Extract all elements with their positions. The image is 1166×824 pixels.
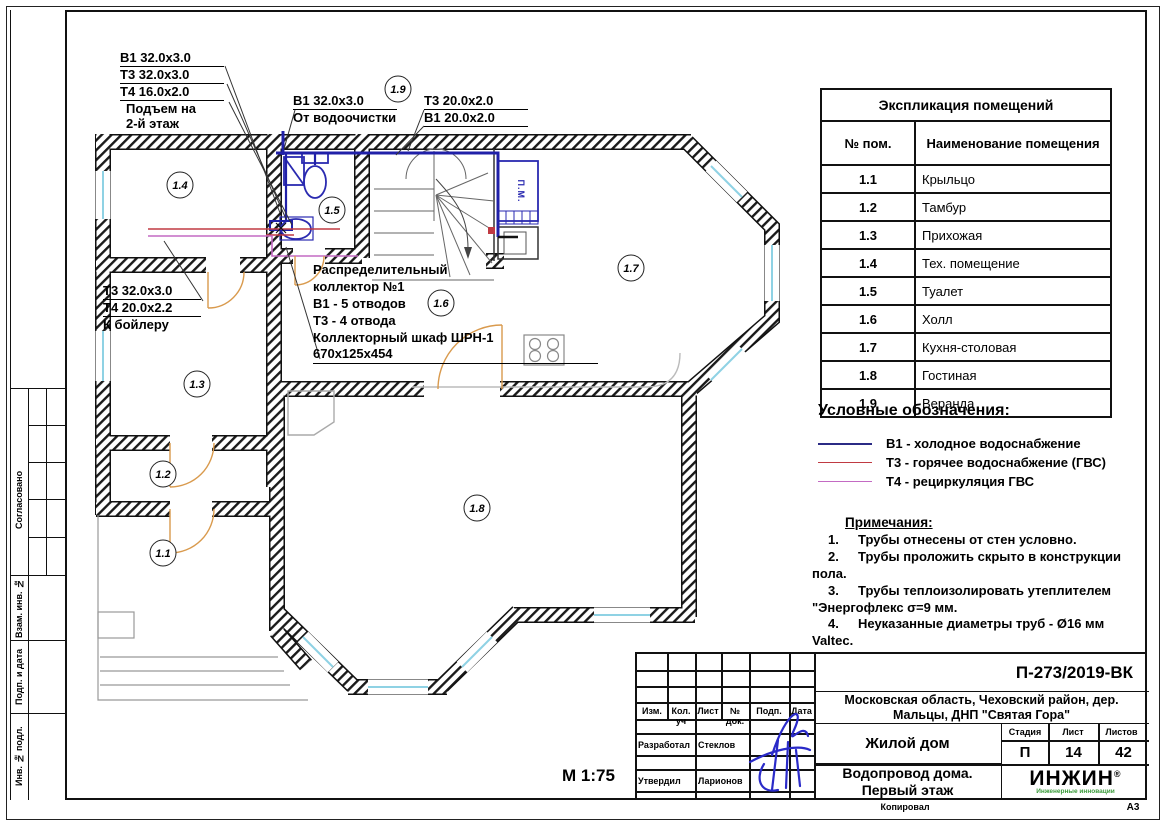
tb-sheet-label: Лист	[1048, 727, 1098, 737]
t3-line-swatch	[818, 462, 872, 463]
scale-label: М 1:75	[562, 766, 615, 786]
svg-text:1.5: 1.5	[324, 205, 340, 217]
tb-sheet-value: 14	[1049, 741, 1098, 763]
stamp-col-subline	[28, 388, 29, 800]
company-logo: ИНЖИН® Инженерные инновации	[1002, 765, 1149, 798]
room-table-col-num: № пом.	[821, 121, 915, 165]
note-item: 2.Трубы проложить скрыто в конструкции п…	[812, 549, 1144, 583]
t4-line-swatch	[818, 481, 872, 482]
svg-text:1.2: 1.2	[155, 469, 170, 481]
signature	[742, 700, 820, 798]
stamp-sec-line	[10, 713, 65, 714]
svg-text:1.4: 1.4	[172, 180, 187, 192]
annotation-boiler: Т3 32.0х3.0 Т4 20.0х2.2 К бойлеру	[103, 283, 201, 333]
tb-address: Московская область, Чеховский район, дер…	[814, 692, 1149, 724]
tb-approved-label: Утвердил	[638, 776, 695, 786]
note-item: 1.Трубы отнесены от стен условно.	[812, 532, 1144, 549]
legend-item-t4: Т4 - рециркуляция ГВС	[818, 472, 1106, 491]
tb-developed-label: Разработал	[638, 740, 695, 750]
table-row: 1.7Кухня-столовая	[821, 333, 1111, 361]
tb-stage-value: П	[1002, 741, 1048, 763]
dishwasher-label: П.М.	[516, 180, 526, 203]
tb-col-izm: Изм.	[637, 706, 667, 716]
floor-plan: П.М.	[90, 45, 815, 710]
notes: 1.Трубы отнесены от стен условно. 2.Труб…	[812, 532, 1144, 650]
stamp-sec-line	[10, 575, 65, 576]
stamp-sec-line	[28, 462, 65, 463]
tb-line	[637, 670, 814, 672]
table-row: 1.6Холл	[821, 305, 1111, 333]
table-row: 1.2Тамбур	[821, 193, 1111, 221]
annotation-inlet: В1 32.0х3.0 От водоочистки	[293, 93, 397, 126]
tb-approved-name: Ларионов	[698, 776, 748, 786]
legend-item-t3: Т3 - горячее водоснабжение (ГВС)	[818, 453, 1106, 472]
table-row: 1.1Крыльцо	[821, 165, 1111, 193]
stairs	[372, 149, 494, 280]
stamp-label-vzam: Взам. инв. №	[10, 577, 28, 639]
legend-title: Условные обозначения:	[818, 402, 1010, 420]
annotation-riser: В1 32.0х3.0 Т3 32.0х3.0 Т4 16.0х2.0 Подъ…	[120, 50, 224, 132]
svg-text:1.3: 1.3	[189, 379, 204, 391]
stamp-sec-line	[28, 537, 65, 538]
stamp-sec-line	[10, 640, 65, 641]
tb-line	[695, 654, 697, 798]
notes-title: Примечания:	[845, 514, 933, 532]
room-schedule-table: Экспликация помещений № пом. Наименовани…	[820, 88, 1112, 418]
stamp-label-soglasovano: Согласовано	[10, 425, 28, 575]
closet	[288, 391, 334, 435]
toilet-fixtures	[280, 153, 328, 240]
tb-line	[637, 686, 814, 688]
room-table-title: Экспликация помещений	[821, 89, 1111, 121]
table-row: 1.5Туалет	[821, 277, 1111, 305]
logo-reg-mark: ®	[1114, 769, 1122, 779]
annotation-kitchen-pipes: Т3 20.0х2.0 В1 20.0х2.0	[424, 93, 528, 127]
logo-subtitle: Инженерные инновации	[1036, 789, 1114, 796]
table-row: 1.8Гостиная	[821, 361, 1111, 389]
stamp-sec-line	[28, 499, 65, 500]
legend: В1 - холодное водоснабжение Т3 - горячее…	[818, 434, 1106, 491]
stamp-label-podp: Подп. и дата	[10, 642, 28, 712]
stamp-label-inv: Инв. № подл.	[10, 715, 28, 798]
legend-item-b1: В1 - холодное водоснабжение	[818, 434, 1106, 453]
svg-text:1.7: 1.7	[623, 263, 639, 275]
tb-doc-number: П-273/2019-ВК	[814, 654, 1149, 692]
tb-stage-label: Стадия	[1002, 727, 1048, 737]
stamp-sec-line	[28, 425, 65, 426]
tb-sheets-value: 42	[1099, 741, 1148, 763]
svg-text:1.1: 1.1	[155, 548, 170, 560]
stamp-sec-line	[10, 388, 65, 389]
annotation-collector: Распределительный коллектор №1 В1 - 5 от…	[313, 262, 598, 364]
table-row: 1.3Прихожая	[821, 221, 1111, 249]
room-table-col-name: Наименование помещения	[915, 121, 1111, 165]
note-item: 4.Неуказанные диаметры труб - Ø16 мм Val…	[812, 616, 1144, 650]
logo-text: ИНЖИН	[1029, 767, 1114, 790]
title-block: Изм. Кол. уч Лист № док. Подп. Дата Разр…	[635, 652, 1147, 800]
tb-drawing-title: Водопровод дома. Первый этаж	[814, 765, 1002, 798]
b1-line-swatch	[818, 443, 872, 445]
table-row: 1.4Тех. помещение	[821, 249, 1111, 277]
tb-col-koluch: Кол. уч	[667, 706, 695, 726]
svg-text:1.8: 1.8	[469, 503, 485, 515]
stamp-col-subline2	[46, 388, 47, 575]
copied-label: Копировал	[855, 802, 955, 812]
tb-col-list: Лист	[695, 706, 721, 716]
tb-developed-name: Стеклов	[698, 740, 748, 750]
tb-object-name: Жилой дом	[814, 724, 1002, 764]
format-label: А3	[1118, 802, 1148, 813]
drawing-sheet: Согласовано Взам. инв. № Подп. и дата Ин…	[0, 0, 1166, 824]
tb-sheets-label: Листов	[1098, 727, 1145, 737]
note-item: 3.Трубы теплоизолировать утеплителем "Эн…	[812, 583, 1144, 617]
